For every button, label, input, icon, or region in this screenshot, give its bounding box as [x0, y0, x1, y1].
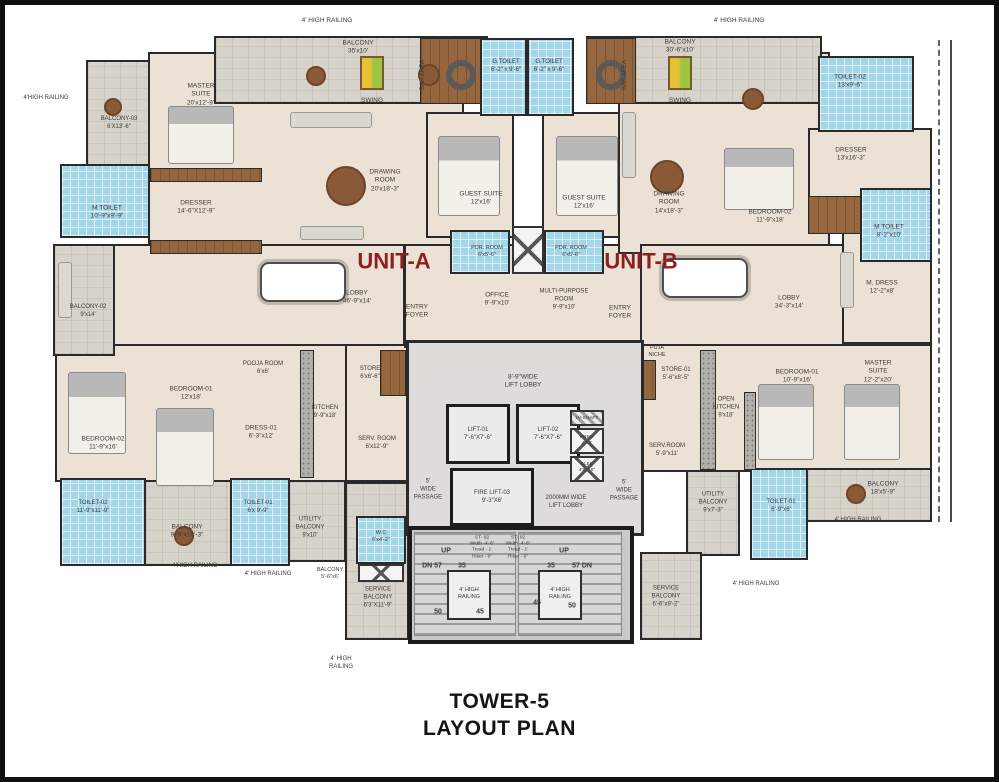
label-m-toilet-a: M TOILET 10'-9"x9'-9": [91, 205, 124, 222]
label-railing-top-a: 4' HIGH RAILING: [302, 17, 353, 25]
m-toilet-a: [60, 164, 150, 238]
label-railing-top-b: 4' HIGH RAILING: [714, 17, 765, 25]
label-stair-50-left: 50: [434, 607, 442, 616]
balcony-table-1: [742, 88, 764, 110]
round-table-drawing-a: [326, 166, 366, 206]
label-serv-room-a: SERV. ROOM 6'x12'-9": [358, 436, 396, 452]
label-master-suite-a: MASTER SUITE 20'x12'-9": [187, 82, 215, 107]
sofa-drawing-a2: [300, 226, 364, 240]
label-unit-b: UNIT-B: [604, 248, 677, 277]
tower5-floor-plan: 4'HIGH RAILING4' HIGH RAILINGBALCONY 35'…: [0, 0, 999, 782]
label-dresser-b: DRESSER 13'x16'-3": [835, 147, 866, 164]
label-wc: W.C 6'x4'-2": [372, 530, 390, 544]
toilet-02-left: [60, 478, 146, 566]
label-railing-bottom-left-1: 4'HIGH RAILING: [172, 563, 217, 571]
label-stair-rail-label-left: 4' HIGH RAILING: [458, 587, 480, 601]
balcony-table-4: [846, 484, 866, 504]
label-lift-01: LIFT-01 7'-6"X7'-6": [464, 427, 492, 443]
bed-master-b: [844, 384, 900, 460]
label-master-suite-b: MASTER SUITE 12'-2"x20': [864, 359, 892, 384]
g-toilet-divider: [525, 38, 529, 116]
label-bar-area-a: BAR AREA: [420, 60, 428, 90]
label-swing-a: SWING: [361, 97, 383, 105]
swing-seat-b: [668, 56, 692, 90]
label-balcony-small-left: BALCONY 5'-6"x6': [317, 567, 343, 581]
plan-title-line2: LAYOUT PLAN: [0, 715, 999, 742]
label-fire-lift-03: FIRE LIFT-03 9'-3"X6': [474, 490, 510, 506]
kitchen-counter-b2: [744, 392, 756, 470]
swing-seat-a: [360, 56, 384, 90]
toilet-01-left: [230, 478, 290, 566]
label-open-kitchen: OPEN KITCHEN 9'x18': [713, 396, 739, 419]
label-swing-b: SWING: [669, 97, 691, 105]
label-balcony-02: BALCONY-02 9'x14': [70, 304, 107, 320]
sofa-drawing-b: [622, 112, 636, 178]
label-utility-balcony-r: UTILITY BALCONY 9'x7'-3": [699, 491, 728, 514]
floor-plan-page: 4'HIGH RAILING4' HIGH RAILINGBALCONY 35'…: [0, 0, 999, 782]
label-lobby-a: LOBBY 46'-9"x14': [343, 290, 371, 307]
dresser-a-wardrobe-top: [150, 168, 262, 182]
plan-title-block: TOWER-5 LAYOUT PLAN: [0, 688, 999, 743]
label-railing-bottom-left-2: 4' HIGH RAILING: [245, 571, 292, 579]
label-stair-50-right: 50: [568, 601, 576, 610]
label-g-toilet-1: G.TOILET 6'-2" x 9'-6": [491, 59, 521, 75]
sofa-lobby-b: [840, 252, 854, 308]
label-railing-bottom-outer-left: 4' HIGH RAILING: [329, 656, 353, 672]
label-lift-lobby-wide: 8'-9"WIDE LIFT LOBBY: [505, 374, 542, 391]
label-office: OFFICE 9'-9"x10': [485, 292, 510, 309]
label-service-balcony-l: SERVICE BALCONY 6'3"X11'-9": [364, 586, 393, 609]
label-balcony-r: BALCONY 18'x5'-9": [867, 481, 898, 498]
label-store-01-b: STORE-01 5'-6"x8'-5": [661, 367, 690, 383]
label-railing-top-left: 4'HIGH RAILING: [23, 95, 68, 103]
label-utility-balcony-l: UTILITY BALCONY 9'x10': [296, 516, 325, 539]
label-drawing-room-b: DRAWING ROOM 14'x18'-3": [653, 190, 684, 215]
label-lobby-b: LOBBY 34'-3"x14': [775, 295, 803, 312]
label-guest-suite-a: GUEST SUITE 12'x16': [459, 191, 502, 208]
label-toilet-02-r: TOILET-02 13'x9'-6": [834, 74, 866, 91]
label-balcony-a: BALCONY 35'x10': [342, 40, 373, 57]
label-stair-rail-label-right: 4' HIGH RAILING: [549, 587, 571, 601]
label-lv-shaft: LV-SHAFT: [576, 416, 599, 422]
store-a-shelf: [380, 350, 406, 396]
balcony-table-6: [306, 66, 326, 86]
label-pooja-room: POOJA ROOM 6'x6': [243, 361, 283, 377]
boundary-line-dashed: [938, 40, 940, 522]
plan-title-line1: TOWER-5: [0, 688, 999, 715]
label-pdr-room-a: PDR. ROOM 6'x5'-6": [471, 245, 503, 259]
label-passage-b: 5' WIDE PASSAGE: [610, 479, 638, 502]
label-unit-a: UNIT-A: [357, 248, 430, 277]
bed-bedroom01-a: [156, 408, 214, 486]
label-bedroom-01-b: BEDROOM-01 10'-9"x16': [776, 369, 819, 386]
label-railing-right-edge: 4' HIGH RAILING: [835, 517, 882, 525]
label-service-balcony-r: SERVICE BALCONY 6'-6"x9'-2": [652, 585, 681, 608]
label-pdr-room-b: PDR. ROOM 6'x5'-6": [555, 245, 587, 259]
store-b-shelf: [642, 360, 656, 400]
central-duct-shaft: [512, 226, 544, 274]
wc-duct-shaft: [358, 564, 404, 582]
label-lift-lobby-2000: 2000MM WIDE LIFT LOBBY: [546, 495, 587, 511]
label-stair-up-right: UP: [559, 546, 569, 555]
label-bedroom-01-a: BEDROOM-01 12'x18': [170, 386, 213, 403]
bed-bedroom02-b: [724, 148, 794, 210]
label-balcony-03: BALCONY-03 6'X13'-6": [101, 116, 138, 132]
label-bedroom-02-a: BEDROOM-02 11'-9"x16': [82, 436, 125, 453]
sofa-drawing-a: [290, 112, 372, 128]
label-stair-up-left: UP: [441, 546, 451, 555]
label-stair-note-left: ST- 02 Width -4'-6" Tread - 1' Riser - 6…: [470, 536, 495, 561]
label-m-toilet-b: M TOILET 8'-2"x10': [874, 224, 904, 241]
label-stair-35-left: 35: [458, 561, 466, 570]
bed-bedroom01-b: [758, 384, 814, 460]
label-drawing-room-a: DRAWING ROOM 20'x18'-3": [369, 168, 400, 193]
label-entry-foyer-b: ENTRY FOYER: [609, 305, 631, 322]
label-passage-a: 5' WIDE PASSAGE: [414, 478, 442, 501]
label-dress-01: DRESS-01 6'-3"x12': [245, 425, 277, 442]
label-stair-45-left: 45: [476, 607, 484, 616]
label-serv-room-b: SERV.ROOM 5'-9"x11': [649, 443, 685, 459]
label-puja-niche: PUJA NICHE: [648, 345, 665, 359]
label-stair-dn-left: DN 57: [422, 561, 442, 570]
bar-counter-a: [446, 60, 476, 90]
label-toilet-01-l: TOILET-01 6'x 9'-9": [243, 500, 272, 516]
toilet-02-right: [818, 56, 914, 132]
label-bedroom-02-b: BEDROOM-02 11'-9"x18': [749, 209, 792, 226]
label-stair-note-right: ST- 02 Width -4'-6" Tread - 1' Riser - 6…: [506, 536, 531, 561]
label-m-dress-b: M. DRESS 12'-2"x8': [866, 280, 897, 297]
label-kitchen-a: KITCHEN 9'-9"x18': [312, 405, 338, 421]
label-stair-35-right: 35: [547, 561, 555, 570]
label-lift-02: LIFT-02 7'-6"X7'-6": [534, 427, 562, 443]
label-bar-area-b: BAR AREA: [622, 60, 630, 90]
label-stair-dn-right: 57 DN: [572, 561, 592, 570]
label-balcony-b: BALCONY 30'-6"x10': [664, 39, 695, 56]
dresser-a-wardrobe-bottom: [150, 240, 262, 254]
label-stair-45-right: 45: [533, 598, 541, 607]
label-store-a: STORE 6'x6'-6": [360, 366, 381, 382]
bed-master-a: [168, 106, 234, 164]
label-g-toilet-2: G.TOILET 6'-2" x 9'-6": [534, 59, 564, 75]
label-guest-suite-b: GUEST SUITE 12'x16': [562, 195, 605, 212]
label-toilet-02-l: TOILET-02 11'-9"x11'-9": [77, 500, 110, 516]
label-railing-bottom-right: 4' HIGH RAILING: [733, 581, 780, 589]
dining-table-a: [260, 262, 346, 302]
label-entry-foyer-a: ENTRY FOYER: [406, 304, 428, 321]
balcony-table-3: [104, 98, 122, 116]
boundary-line-solid: [950, 40, 952, 522]
label-elec-shaft: ELEC 4'X2'-6": [579, 462, 595, 474]
round-table-drawing-b: [650, 160, 684, 194]
label-toilet-01-r: TOILET-01 6'-9"x6': [766, 499, 795, 515]
label-dresser-a: DRESSER 14'-6"X12'-9": [177, 200, 214, 217]
label-balcony-l: BALCONY 9'-9"x10'-3": [171, 524, 204, 541]
label-multi-purpose: MULTI-PURPOSE ROOM 9'-9"x10': [540, 288, 589, 311]
label-pres-shaft: PRES. 4'X2': [580, 435, 594, 447]
